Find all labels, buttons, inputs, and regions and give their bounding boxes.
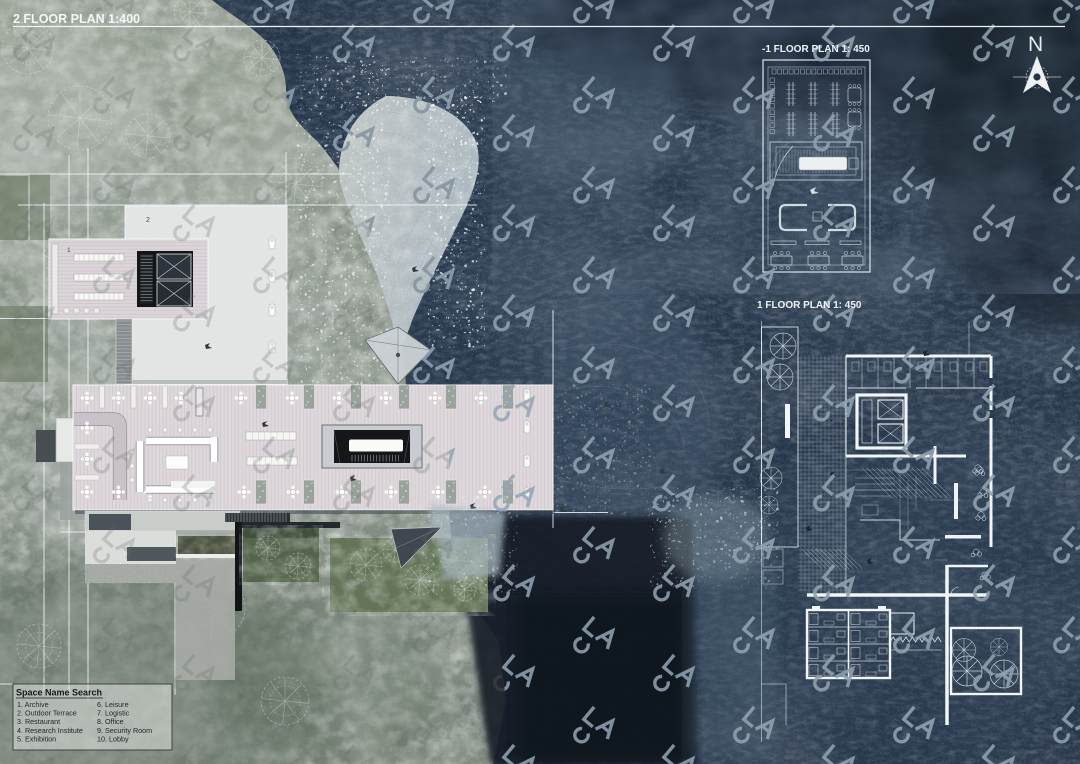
svg-text:2 FLOOR PLAN 1:400: 2 FLOOR PLAN 1:400 — [13, 12, 140, 26]
svg-text:N: N — [1028, 33, 1043, 56]
svg-text:Space Name Search: Space Name Search — [16, 688, 102, 698]
svg-text:1 FLOOR PLAN 1: 450: 1 FLOOR PLAN 1: 450 — [757, 300, 862, 311]
svg-text:-1 FLOOR PLAN 1: 450: -1 FLOOR PLAN 1: 450 — [762, 44, 870, 55]
svg-text:5. Exhibition: 5. Exhibition — [17, 734, 56, 743]
svg-text:10. Lobby: 10. Lobby — [97, 734, 129, 743]
